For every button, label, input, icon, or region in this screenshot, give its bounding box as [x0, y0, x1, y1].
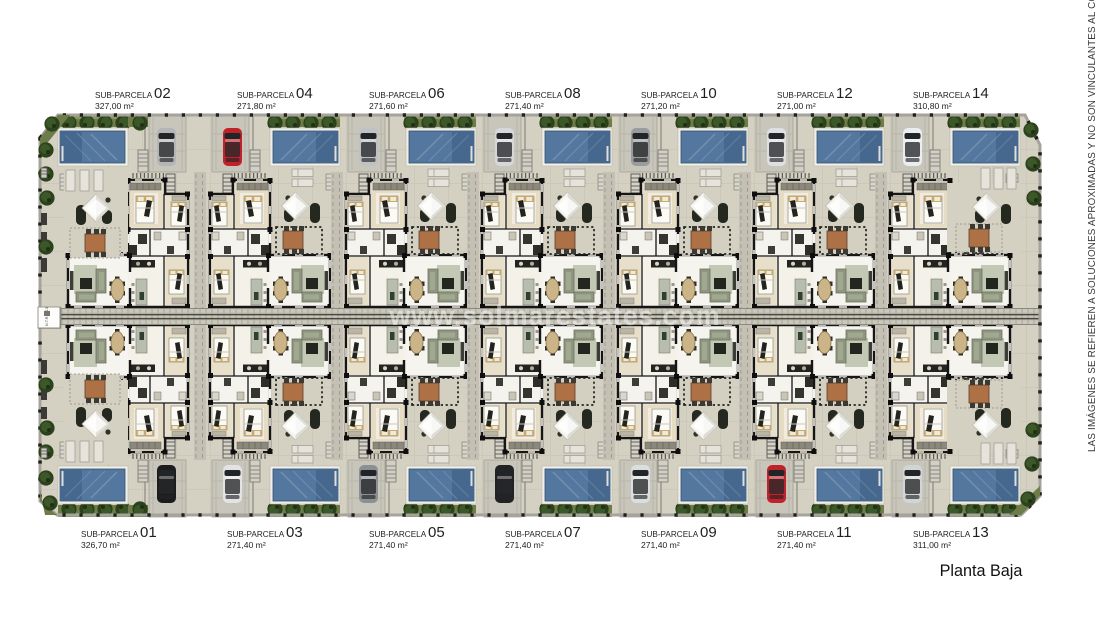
svg-text:SUB-PARCELA 02: SUB-PARCELA 02 — [95, 85, 171, 102]
svg-text:271,40 m²: 271,40 m² — [369, 540, 408, 550]
svg-text:SUB-PARCELA 10: SUB-PARCELA 10 — [641, 85, 717, 102]
svg-text:310,80 m²: 310,80 m² — [913, 101, 952, 111]
svg-text:271,80 m²: 271,80 m² — [237, 101, 276, 111]
svg-text:SUB-PARCELA 01: SUB-PARCELA 01 — [81, 524, 157, 541]
svg-text:SUB-PARCELA 06: SUB-PARCELA 06 — [369, 85, 445, 102]
svg-text:327,00 m²: 327,00 m² — [95, 101, 134, 111]
svg-text:326,70 m²: 326,70 m² — [81, 540, 120, 550]
svg-text:271,40 m²: 271,40 m² — [505, 540, 544, 550]
svg-text:271,40 m²: 271,40 m² — [777, 540, 816, 550]
svg-text:271,60 m²: 271,60 m² — [369, 101, 408, 111]
svg-text:271,20 m²: 271,20 m² — [641, 101, 680, 111]
svg-text:SUB-PARCELA 07: SUB-PARCELA 07 — [505, 524, 581, 541]
svg-text:SUB-PARCELA 12: SUB-PARCELA 12 — [777, 85, 853, 102]
svg-text:SUB-PARCELA 13: SUB-PARCELA 13 — [913, 524, 989, 541]
svg-text:SUB-PARCELA 03: SUB-PARCELA 03 — [227, 524, 303, 541]
svg-text:SUB-PARCELA 04: SUB-PARCELA 04 — [237, 85, 313, 102]
svg-text:271,00 m²: 271,00 m² — [777, 101, 816, 111]
svg-text:N.T.R. 4,13: N.T.R. 4,13 — [45, 307, 49, 326]
svg-text:271,40 m²: 271,40 m² — [227, 540, 266, 550]
svg-text:Planta Baja: Planta Baja — [940, 562, 1023, 580]
svg-text:SUB-PARCELA 14: SUB-PARCELA 14 — [913, 85, 989, 102]
svg-text:271,40 m²: 271,40 m² — [505, 101, 544, 111]
svg-text:www.solmarestates.com: www.solmarestates.com — [389, 301, 721, 331]
svg-text:271,40 m²: 271,40 m² — [641, 540, 680, 550]
svg-text:311,00 m²: 311,00 m² — [913, 540, 951, 550]
svg-text:SUB-PARCELA 05: SUB-PARCELA 05 — [369, 524, 445, 541]
svg-text:LAS IMÁGENES SE REFIEREN A SOL: LAS IMÁGENES SE REFIEREN A SOLUCIONES AP… — [1087, 0, 1098, 452]
svg-text:SUB-PARCELA 09: SUB-PARCELA 09 — [641, 524, 717, 541]
svg-text:SUB-PARCELA 11: SUB-PARCELA 11 — [777, 524, 852, 541]
svg-text:SUB-PARCELA 08: SUB-PARCELA 08 — [505, 85, 581, 102]
